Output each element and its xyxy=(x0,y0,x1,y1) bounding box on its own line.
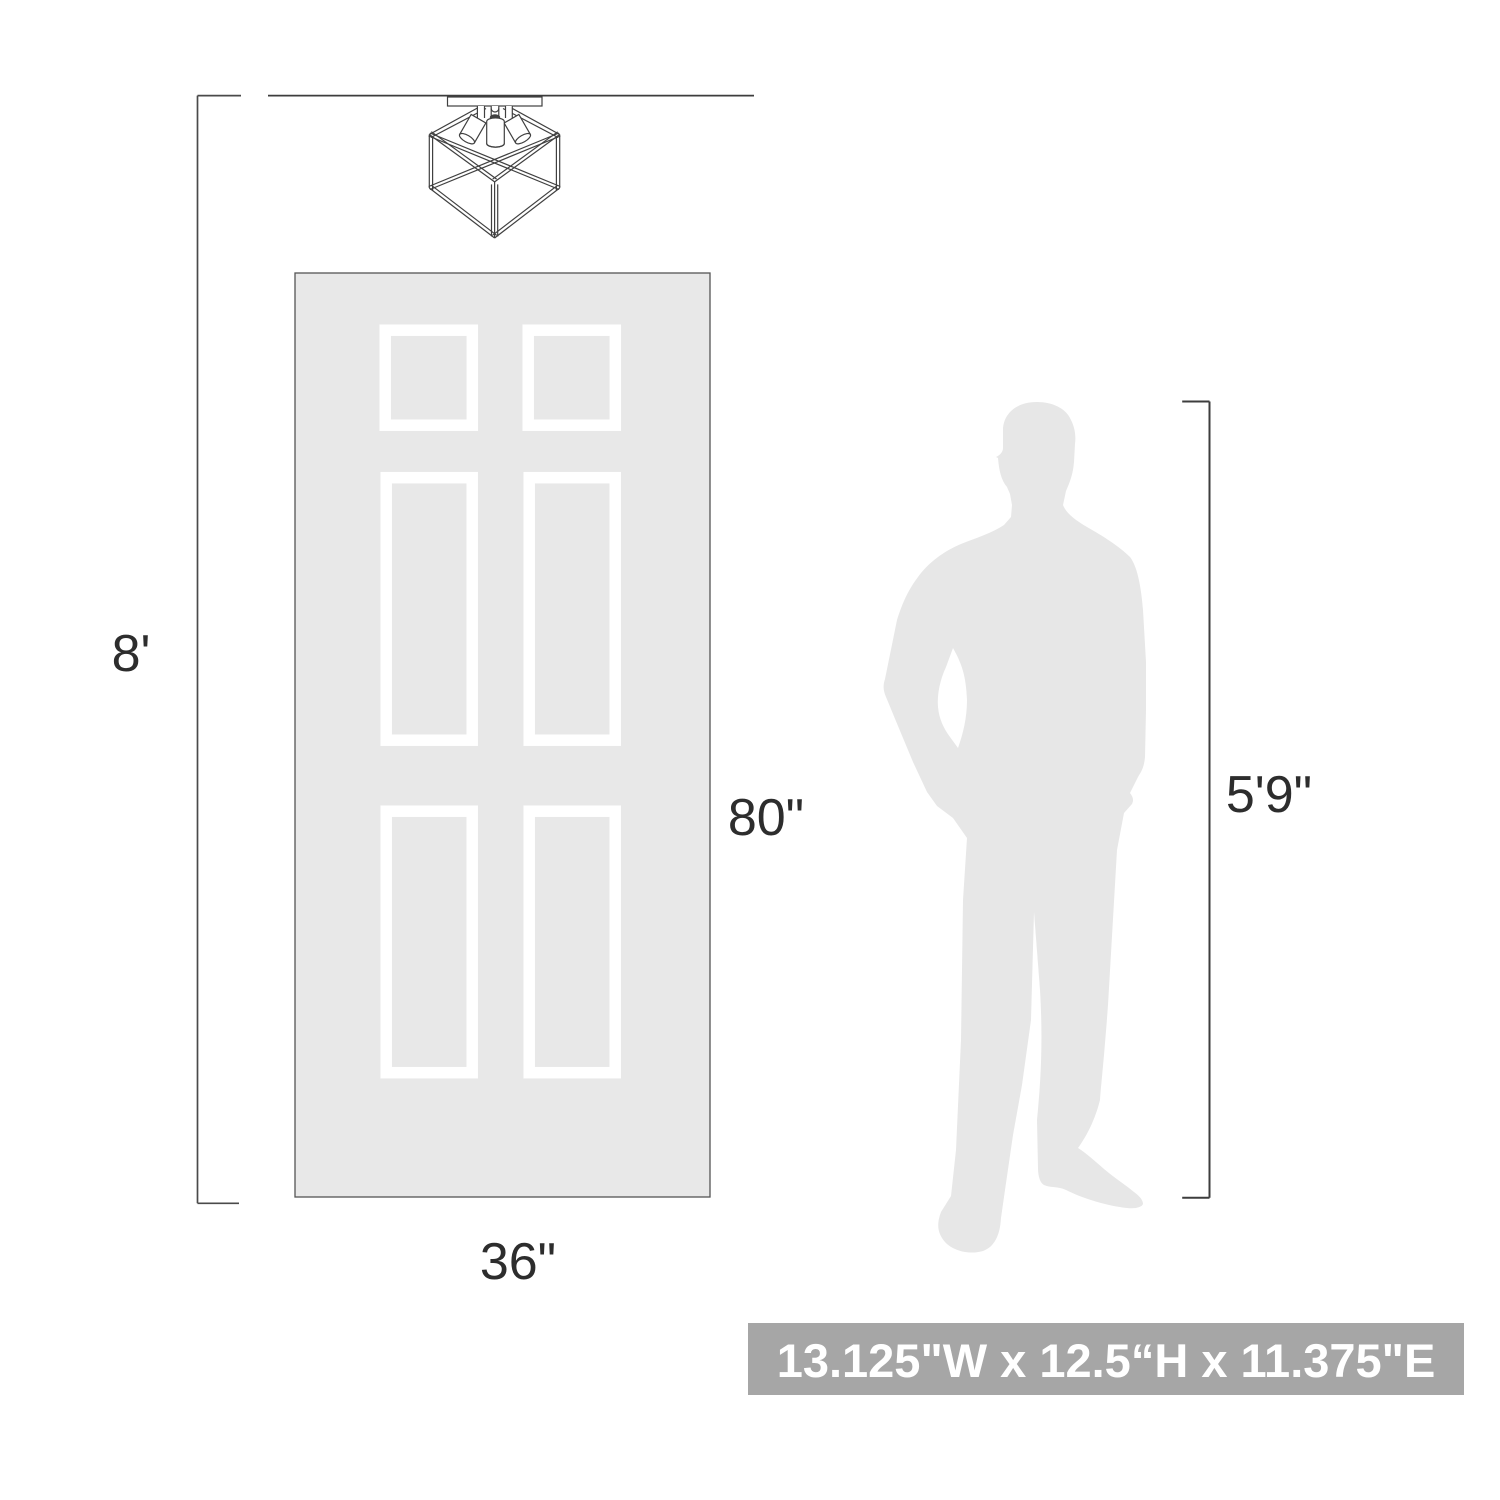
svg-text:8': 8' xyxy=(112,625,151,683)
svg-text:36": 36" xyxy=(480,1233,556,1291)
svg-text:13.125"W x 12.5“H x 11.375"E: 13.125"W x 12.5“H x 11.375"E xyxy=(777,1334,1436,1387)
svg-text:80": 80" xyxy=(728,789,804,847)
svg-text:5'9": 5'9" xyxy=(1226,766,1312,824)
